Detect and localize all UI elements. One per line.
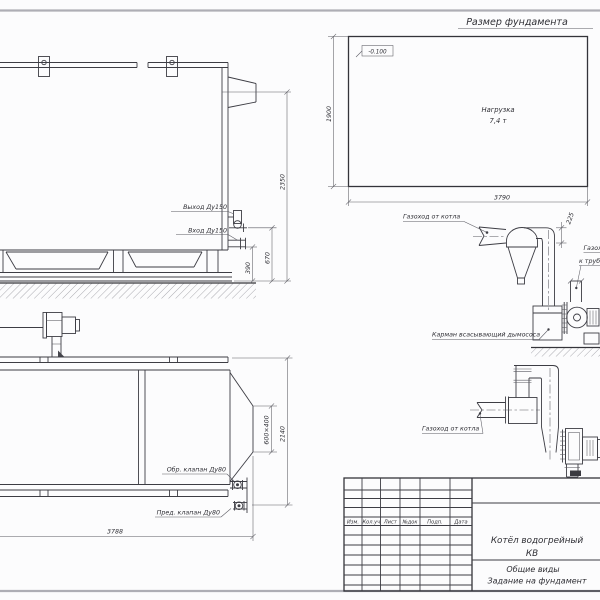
foundation-outline xyxy=(349,37,588,187)
pocket-label: Карман всасывающий дымососа xyxy=(432,332,540,339)
burner-unit xyxy=(0,313,80,357)
title-block-headers: Изм. Кол.уч Лист №док Подп. Дата xyxy=(347,520,468,526)
dim-1900: 1900 xyxy=(326,106,333,122)
duct-inlet-stub xyxy=(473,227,506,246)
foundation-title: Размер фундамента xyxy=(466,17,568,28)
safety-valve-label: Пред. клапан Ду80 xyxy=(157,510,220,517)
inlet-fitting xyxy=(228,238,246,249)
technical-drawing: Выход Ду150 Вход Ду150 390 670 2350 Разм… xyxy=(0,0,600,600)
elevation-mark: -0.100 xyxy=(356,46,393,58)
flue-duct-upper-view: Газоход от котла xyxy=(403,212,600,357)
dimensions-top-view: 600×400 2140 3788 xyxy=(0,355,293,541)
product-name-line1: Котёл водогрейный xyxy=(491,536,584,546)
lifting-lug xyxy=(167,57,178,77)
smoke-exhauster-side xyxy=(562,279,599,345)
col-podp: Подп. xyxy=(427,520,442,526)
stamp-mark xyxy=(570,471,581,477)
foundation-plan: Размер фундамента -0.100 Нагрузка 7,4 т … xyxy=(326,17,593,206)
dim-2140: 2140 xyxy=(280,426,287,442)
dim-600x400: 600×400 xyxy=(264,415,271,444)
outlet-label: Выход Ду150 xyxy=(183,204,227,211)
boiler-side-view: Выход Ду150 Вход Ду150 390 670 2350 xyxy=(0,57,291,299)
dimensions-side-view: 390 670 2350 xyxy=(222,89,291,283)
dim-3788: 3788 xyxy=(107,529,123,536)
doc-type-line2: Задание на фундамент xyxy=(487,577,586,586)
title-block: Изм. Кол.уч Лист №док Подп. Дата Котёл в… xyxy=(344,471,600,592)
dim-225-group: 225 xyxy=(556,212,576,248)
support-frame xyxy=(0,250,232,281)
flue-duct-lower-view: Газоход от котла xyxy=(422,366,600,478)
riser-duct xyxy=(524,228,555,310)
col-izm: Изм. xyxy=(347,520,359,526)
horizontal-duct xyxy=(470,397,540,424)
load-label-1: Нагрузка xyxy=(481,106,514,114)
col-koluch: Кол.уч xyxy=(362,520,380,526)
dim-670: 670 xyxy=(265,252,272,264)
svg-text:к трубе: к трубе xyxy=(579,257,600,265)
sheet-frame xyxy=(0,11,600,592)
ground-hatch xyxy=(531,348,600,357)
duct-from-boiler-label: Газоход от котла xyxy=(403,214,460,221)
duct-to-stack-label: Газоход к трубе xyxy=(575,245,600,289)
col-ndok: №док xyxy=(401,520,418,526)
check-valve-label: Обр. клапан Ду80 xyxy=(167,466,226,474)
boiler-top-view: Обр. клапан Ду80 Пред. клапан Ду80 600×4… xyxy=(0,313,293,542)
drawing-sheet: Выход Ду150 Вход Ду150 390 670 2350 Разм… xyxy=(0,0,600,600)
lifting-lug xyxy=(39,57,50,77)
doc-type-line1: Общие виды xyxy=(506,565,559,574)
duct-from-boiler-label: Газоход от котла xyxy=(422,426,479,433)
cyclone xyxy=(507,228,538,285)
svg-text:Газоход: Газоход xyxy=(584,245,600,252)
dim-2350: 2350 xyxy=(280,174,287,190)
outlet-fitting xyxy=(228,211,247,233)
product-name-line2: КВ xyxy=(526,549,538,559)
dim-390: 390 xyxy=(245,262,252,274)
col-list: Лист xyxy=(383,520,398,526)
flue-outlet xyxy=(230,373,253,482)
check-valve xyxy=(230,480,247,490)
safety-valve xyxy=(233,501,247,511)
load-label-2: 7,4 т xyxy=(490,117,508,125)
dimensions-foundation: 1900 3790 xyxy=(326,34,590,206)
smoke-exhauster-top xyxy=(560,429,600,478)
inlet-label: Вход Ду150 xyxy=(188,228,227,235)
ground-hatch xyxy=(0,283,256,299)
col-data: Дата xyxy=(453,520,467,526)
dim-3790: 3790 xyxy=(494,195,510,202)
elbow-riser xyxy=(514,366,559,461)
dim-225: 225 xyxy=(565,212,576,226)
svg-text:-0.100: -0.100 xyxy=(368,50,387,56)
